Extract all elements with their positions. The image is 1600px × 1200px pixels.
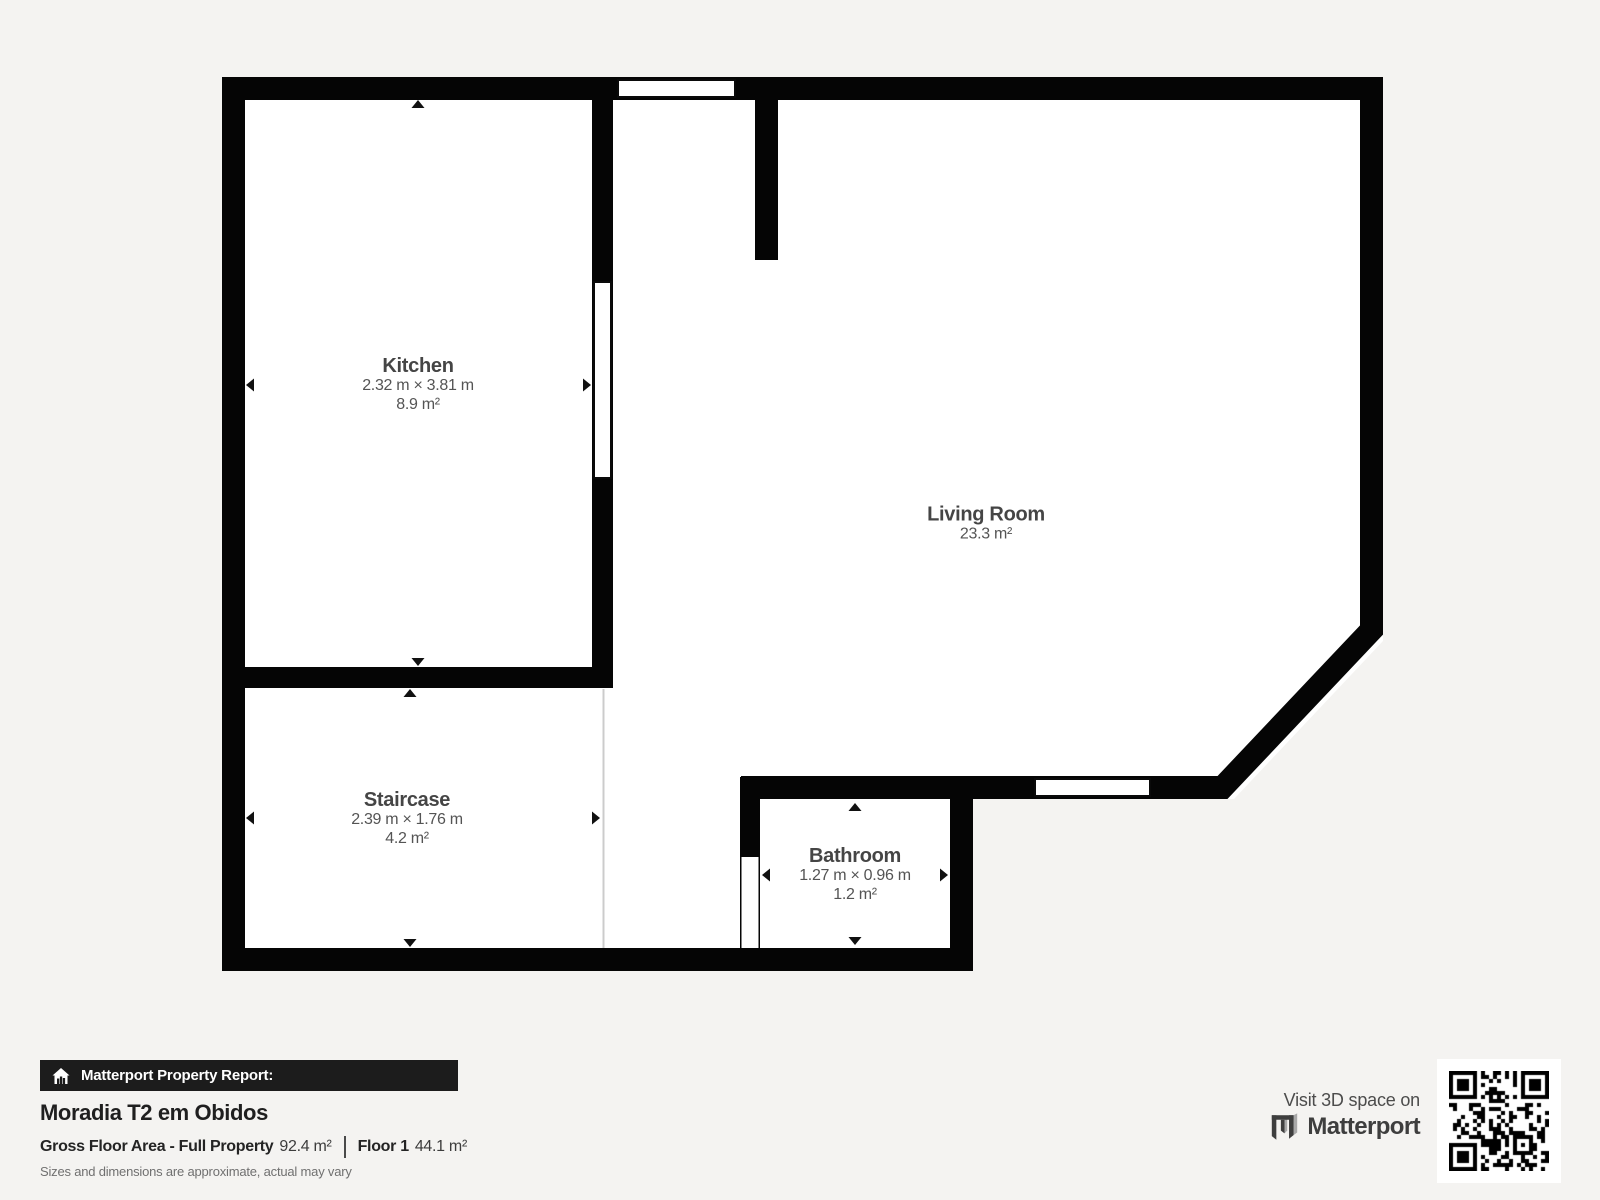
room-area: 23.3 m²	[927, 525, 1045, 544]
room-area: 8.9 m²	[362, 395, 474, 414]
wall-kitchen-bottom	[222, 667, 613, 688]
room-label-staircase: Staircase 2.39 m × 1.76 m 4.2 m²	[351, 790, 463, 848]
matterport-wordmark: Matterport	[1307, 1112, 1420, 1142]
room-label-kitchen: Kitchen 2.32 m × 3.81 m 8.9 m²	[362, 356, 474, 414]
floor-value: 44.1 m²	[415, 1136, 467, 1158]
room-dimensions: 1.27 m × 0.96 m	[799, 866, 911, 885]
visit-3d-space-text: Visit 3D space on	[1284, 1090, 1420, 1111]
room-label-living-room: Living Room 23.3 m²	[927, 505, 1045, 544]
report-badge-label: Matterport Property Report:	[81, 1067, 273, 1084]
report-badge: Matterport Property Report:	[40, 1060, 458, 1091]
floor-area-summary: Gross Floor Area - Full Property 92.4 m²…	[40, 1136, 467, 1158]
property-title: Moradia T2 em Obidos	[40, 1100, 268, 1126]
matterport-logo-icon	[1270, 1113, 1299, 1141]
window-living-room	[1035, 779, 1150, 796]
room-dimensions: 2.39 m × 1.76 m	[351, 810, 463, 829]
room-name: Bathroom	[799, 846, 911, 866]
gross-floor-area-value: 92.4 m²	[279, 1136, 331, 1158]
floor-label: Floor 1	[358, 1136, 409, 1158]
door-gap-bathroom	[742, 857, 759, 948]
room-area: 1.2 m²	[799, 885, 911, 904]
room-label-bathroom: Bathroom 1.27 m × 0.96 m 1.2 m²	[799, 846, 911, 904]
house-icon	[51, 1066, 71, 1086]
wall-left	[222, 77, 245, 971]
room-dimensions: 2.32 m × 3.81 m	[362, 376, 474, 395]
room-name: Staircase	[351, 790, 463, 810]
disclaimer-text: Sizes and dimensions are approximate, ac…	[40, 1164, 352, 1179]
room-name: Living Room	[927, 505, 1045, 525]
matterport-floorplan-report: Kitchen 2.32 m × 3.81 m 8.9 m² Living Ro…	[0, 0, 1600, 1200]
room-area: 4.2 m²	[351, 829, 463, 848]
room-name: Kitchen	[362, 356, 474, 376]
gross-floor-area-label: Gross Floor Area - Full Property	[40, 1136, 273, 1158]
window-top-wall	[618, 80, 735, 97]
wall-livingroom-stub	[755, 99, 778, 260]
matterport-logo: Matterport	[1270, 1112, 1420, 1142]
wall-bottom	[222, 948, 973, 971]
meta-divider	[344, 1136, 346, 1158]
qr-card[interactable]	[1437, 1059, 1561, 1183]
wall-bathroom-right	[950, 777, 973, 949]
window-kitchen	[594, 282, 611, 478]
qr-code[interactable]	[1449, 1071, 1549, 1171]
